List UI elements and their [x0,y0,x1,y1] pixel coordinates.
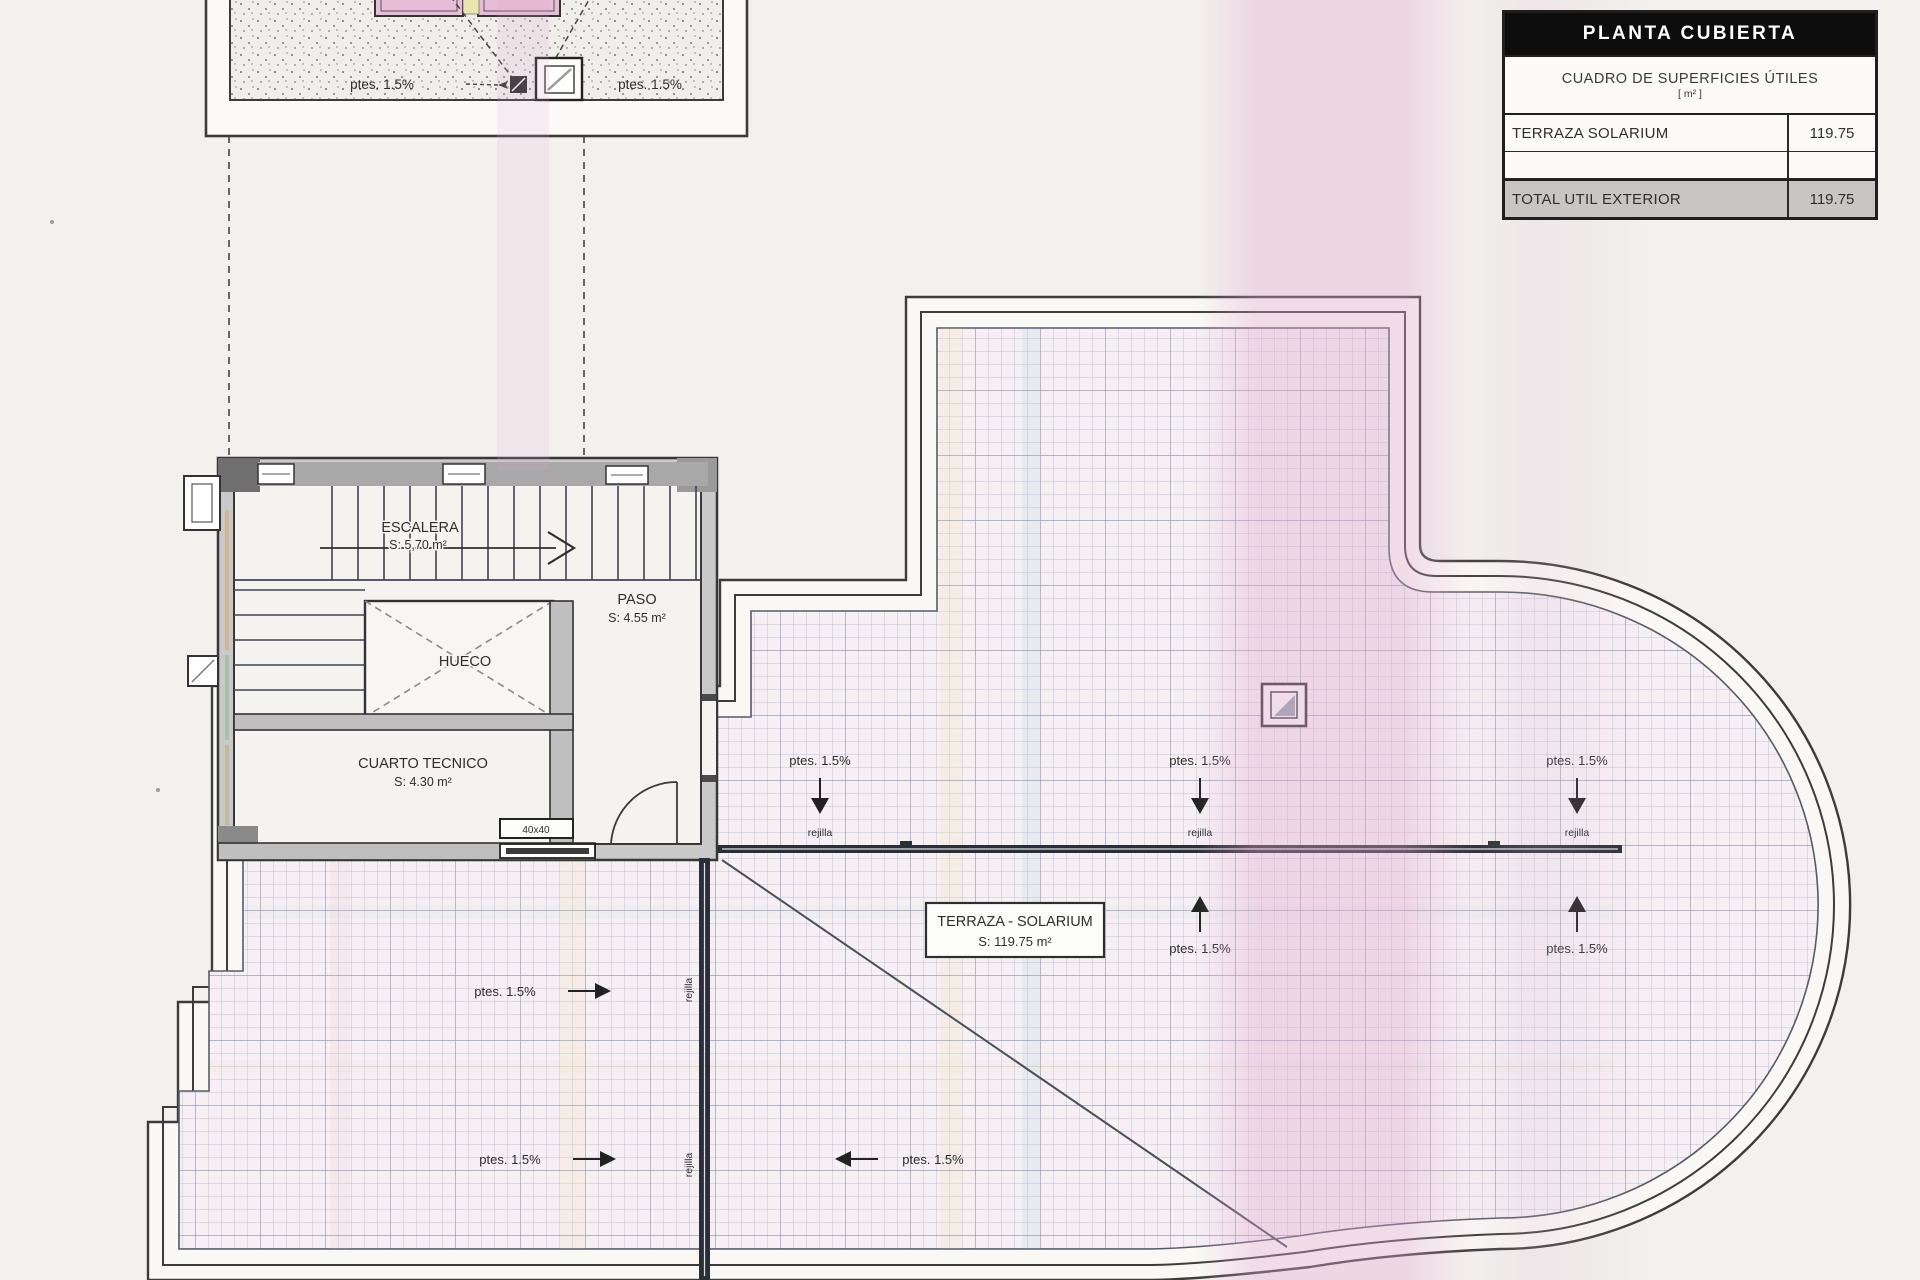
table-row-total: TOTAL UTIL EXTERIOR 119.75 [1505,179,1875,217]
stair-block: 40x40 ESCALERA S: 5,70 m² PASO S: 4.55 m… [184,458,717,860]
table-subtitle: CUADRO DE SUPERFICIES ÚTILES [ m² ] [1505,55,1875,115]
page-speck [156,788,160,792]
drain-channel-vertical [699,858,710,1280]
svg-text:ptes. 1.5%: ptes. 1.5% [479,1152,541,1167]
terrace-label-box: TERRAZA - SOLARIUM S: 119.75 m² [926,903,1104,957]
table-unit: [ m² ] [1678,88,1702,100]
surfaces-table: PLANTA CUBIERTA CUADRO DE SUPERFICIES ÚT… [1502,10,1878,220]
roof-bulkhead: ptes. 1.5% ptes. 1.5% [206,0,747,136]
room-label-escalera: ESCALERA [381,520,459,536]
svg-text:ptes. 1.5%: ptes. 1.5% [789,753,851,768]
room-label-hueco: HUECO [439,654,491,670]
terrace-area: S: 119.75 m² [978,934,1052,949]
table-row: TERRAZA SOLARIUM 119.75 [1505,115,1875,152]
room-label-paso: PASO [617,592,656,608]
table-title: PLANTA CUBIERTA [1505,13,1875,55]
room-area-escalera: S: 5,70 m² [389,538,447,552]
room-area-paso: S: 4.55 m² [608,611,666,625]
rejilla-label-vertical: rejilla [683,1153,695,1178]
svg-text:ptes. 1.5%: ptes. 1.5% [902,1152,964,1167]
rejilla-label-vertical: rejilla [683,978,695,1003]
svg-text:rejilla: rejilla [808,827,833,839]
room-label-cuarto-tecnico: CUARTO TECNICO [358,756,488,772]
slope-label: ptes. 1.5% [618,77,682,92]
roof-plan-sheet: ptes. 1.5% ptes. 1.5% [0,0,1920,1280]
vent-label: 40x40 [522,825,550,836]
room-area-cuarto-tecnico: S: 4.30 m² [394,775,452,789]
skylight [375,0,463,16]
svg-text:ptes. 1.5%: ptes. 1.5% [474,984,536,999]
table-row-empty [1505,152,1875,179]
page-speck [50,220,54,224]
slope-label: ptes. 1.5% [350,77,414,92]
terrace-name: TERRAZA - SOLARIUM [937,914,1093,930]
